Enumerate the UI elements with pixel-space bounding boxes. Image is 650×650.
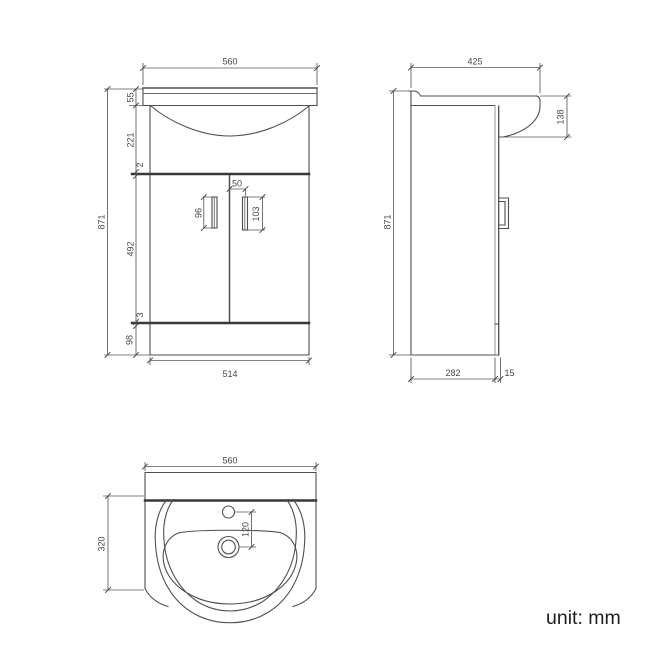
dim-front-cabinet-width: 514 (222, 369, 237, 379)
dim-side-basin-overhang: 138 (556, 109, 566, 124)
plan-drain-inner (222, 540, 236, 554)
dim-plan-tap-to-drain: 120 (241, 522, 251, 537)
front-50-dimline (230, 189, 246, 196)
dim-front-top-width: 560 (222, 57, 237, 67)
unit-label: unit: mm (546, 607, 621, 629)
side-basin-front-curve (499, 96, 540, 137)
side-view (409, 91, 540, 355)
dim-side-overall-height: 871 (383, 214, 393, 229)
plan-view (145, 473, 316, 623)
dim-front-plinth-height: 98 (125, 335, 135, 345)
front-96-extensions (203, 197, 212, 228)
vanity-technical-drawing: 560 55 221 2 492 3 98 871 514 96 103 50 (0, 0, 650, 650)
dim-side-top-depth: 425 (467, 57, 482, 67)
front-basin-curve (151, 106, 309, 136)
dim-plan-top-width: 560 (222, 456, 237, 466)
side-dimension-ticks (391, 65, 570, 382)
plan-bowl-inner-rim (164, 500, 297, 612)
dim-front-counter-height: 55 (126, 92, 136, 102)
dim-front-top-gap: 2 (135, 162, 145, 167)
dim-side-door-thickness: 15 (504, 368, 514, 378)
dim-front-right-handle: 103 (251, 206, 261, 221)
plan-tap-hole (223, 506, 235, 518)
dim-front-basin-height: 221 (126, 132, 136, 147)
unit-label-group: unit: mm (546, 607, 621, 629)
side-counter-top (409, 91, 537, 96)
dim-front-handle-offset: 50 (232, 179, 242, 189)
dim-front-left-handle: 96 (194, 208, 204, 218)
dim-front-bottom-gap: 3 (135, 312, 145, 317)
front-view (132, 88, 317, 355)
technical-drawing-page: 560 55 221 2 492 3 98 871 514 96 103 50 (0, 0, 650, 650)
dim-plan-depth: 320 (97, 536, 107, 551)
dim-front-overall-height: 871 (97, 214, 107, 229)
plan-front-left-fillet (145, 589, 168, 607)
dim-front-door-height: 492 (126, 241, 136, 256)
plan-front-right-fillet (293, 589, 316, 607)
front-view-dimensions: 560 55 221 2 492 3 98 871 514 96 103 50 (97, 57, 320, 380)
plan-view-dimensions: 560 320 120 (97, 456, 319, 593)
front-514-extensions (150, 357, 309, 365)
side-handle-profile (499, 198, 509, 229)
dim-side-cabinet-depth: 282 (445, 368, 460, 378)
plan-320-extensions (103, 496, 144, 590)
plan-basin-interior (163, 530, 297, 604)
